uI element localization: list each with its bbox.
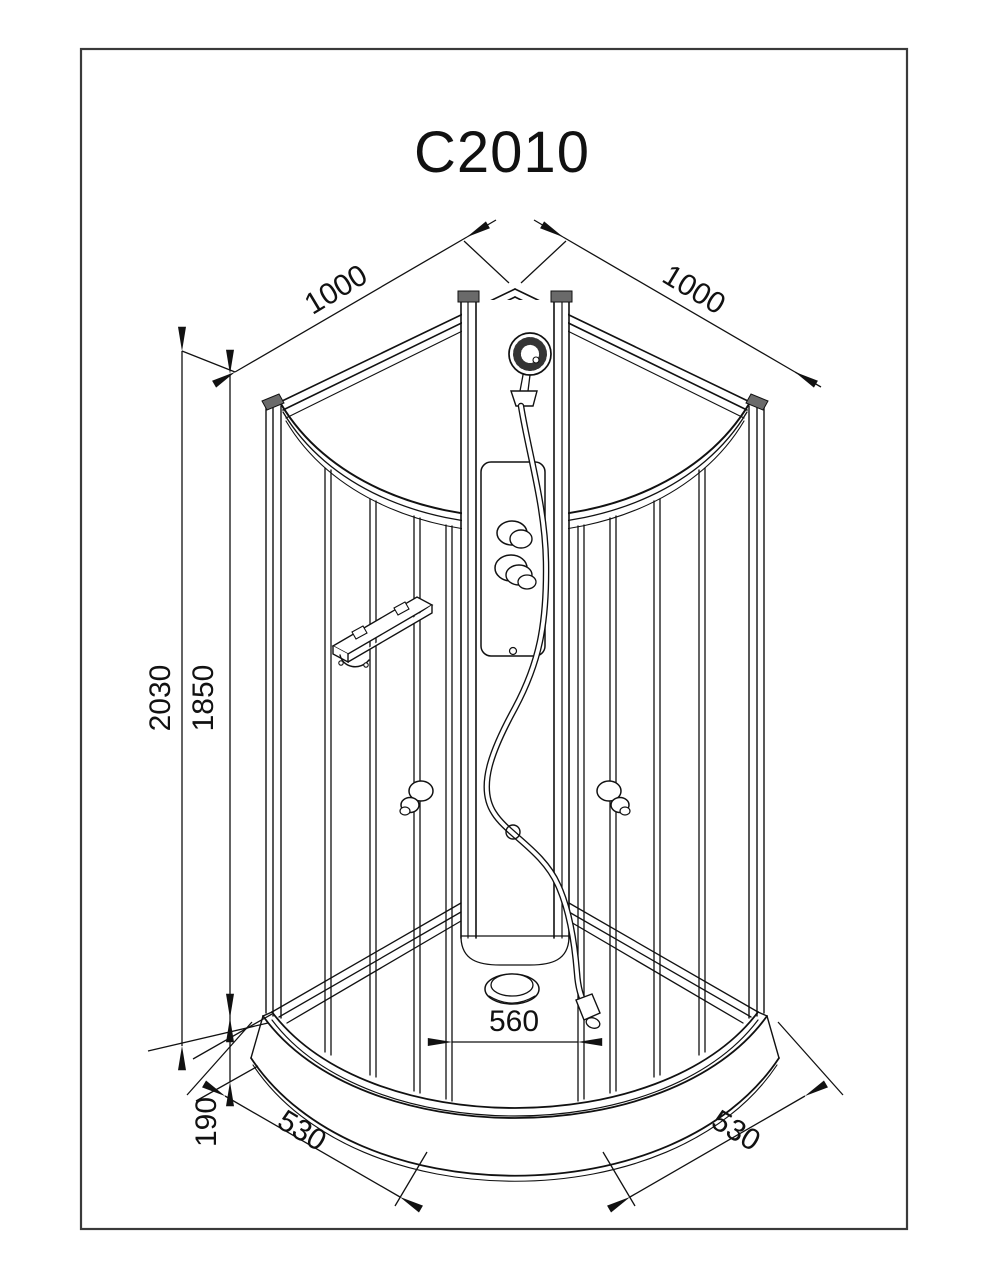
technical-drawing: C2010 (0, 0, 989, 1280)
dim-door-opening-label: 560 (489, 1005, 539, 1038)
model-title: C2010 (414, 120, 590, 185)
dim-height-glass-label: 1850 (187, 665, 220, 732)
dim-height-total-label: 2030 (144, 665, 177, 732)
drain-cover (485, 974, 539, 1004)
drawing-page: C2010 (0, 0, 989, 1280)
dim-tray-height-label: 190 (190, 1097, 223, 1147)
